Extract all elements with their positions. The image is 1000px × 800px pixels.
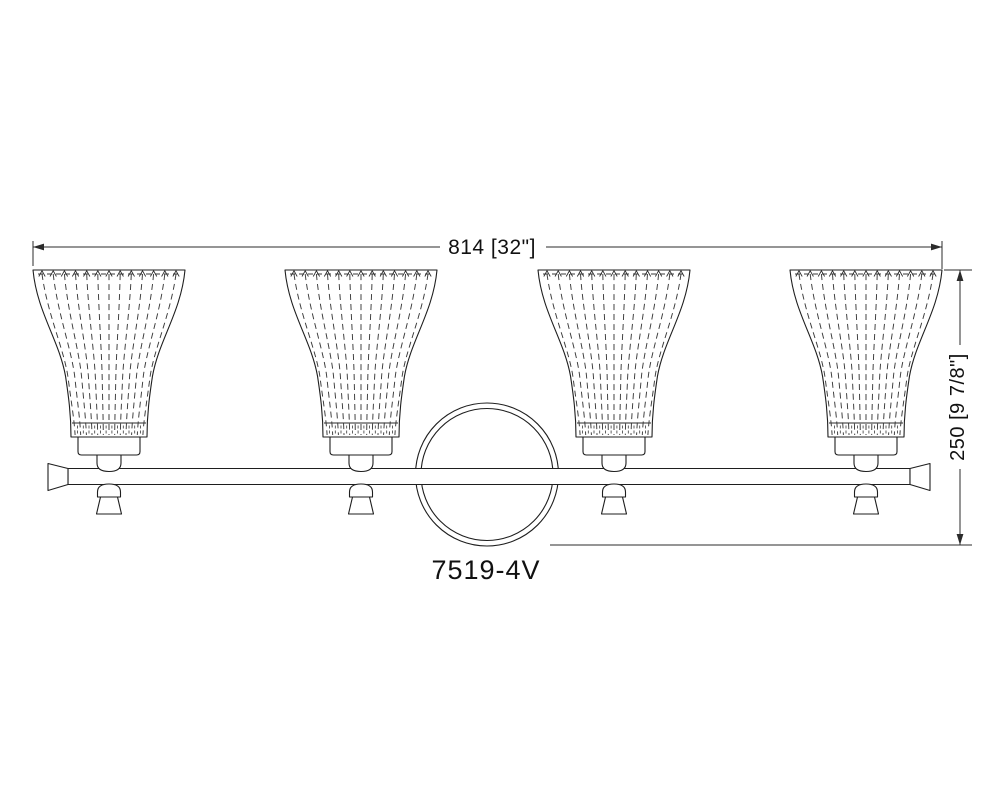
height-dimension: 250 [9 7/8"] xyxy=(944,270,972,545)
width-dim-arrow-left xyxy=(33,244,44,251)
height-dim-arrow-bottom xyxy=(957,534,964,545)
model-number-label: 7519-4V xyxy=(431,555,540,585)
width-dimension: 814 [32"] xyxy=(33,236,942,269)
height-dim-arrow-top xyxy=(957,270,964,281)
crossbar xyxy=(68,469,910,485)
crossbar-end-cap-right xyxy=(910,464,930,491)
width-dim-arrow-right xyxy=(931,244,942,251)
width-dimension-label: 814 [32"] xyxy=(448,236,536,259)
crossbar-end-cap-left xyxy=(48,464,68,491)
vanity-fixture-line-drawing: 814 [32"] 250 [9 7/8"] 7519-4V xyxy=(0,0,1000,800)
drawing-page: 814 [32"] 250 [9 7/8"] 7519-4V xyxy=(0,0,1000,800)
height-dimension-label: 250 [9 7/8"] xyxy=(947,353,969,461)
